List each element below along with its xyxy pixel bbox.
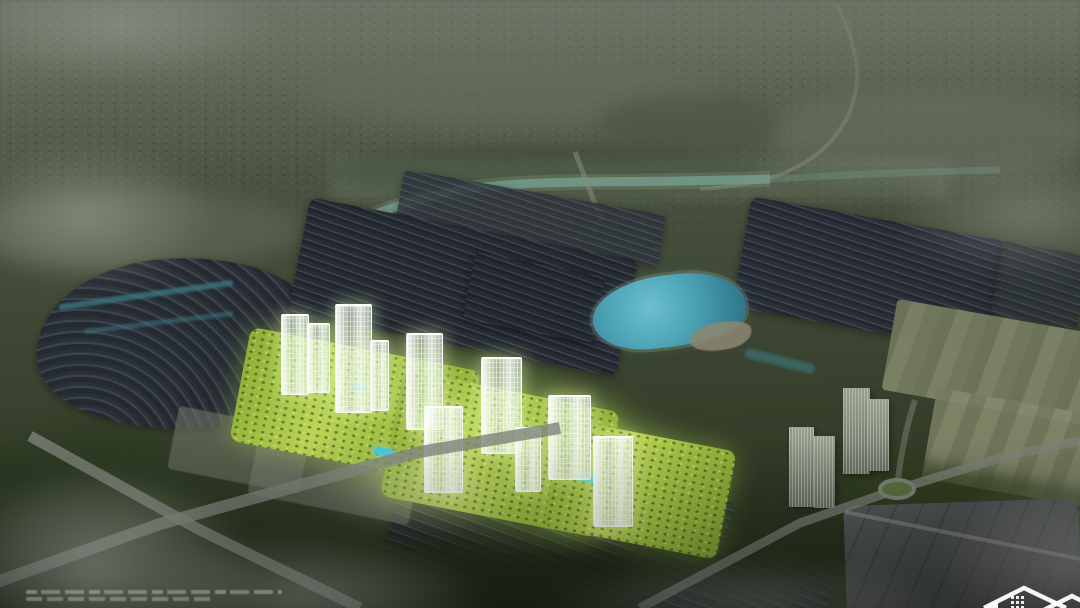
- fog-cloud: [300, 440, 520, 540]
- roundabout: [880, 480, 914, 498]
- watermark-line: [26, 597, 215, 601]
- aerial-render-scene: [0, 0, 1080, 608]
- road: [897, 400, 915, 489]
- watermark-text: [26, 590, 282, 603]
- developer-logo-icon: [982, 578, 1080, 608]
- window-grid: [1011, 596, 1024, 608]
- watermark-line: [26, 590, 282, 594]
